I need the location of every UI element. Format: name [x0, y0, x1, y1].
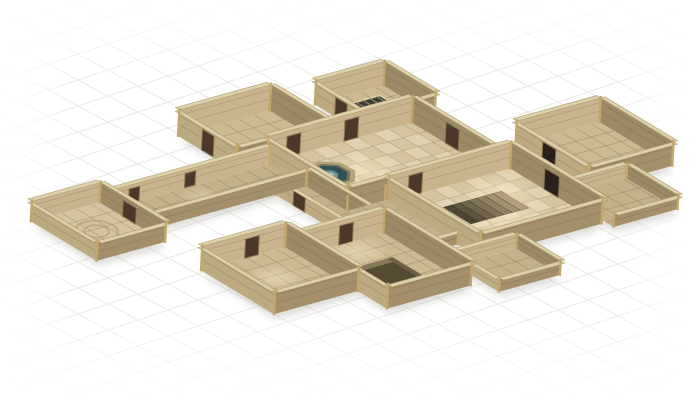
dungeon-isometric-scene — [0, 0, 690, 400]
grid-fade-bottom — [0, 300, 690, 400]
dungeon-map-render — [0, 0, 690, 400]
